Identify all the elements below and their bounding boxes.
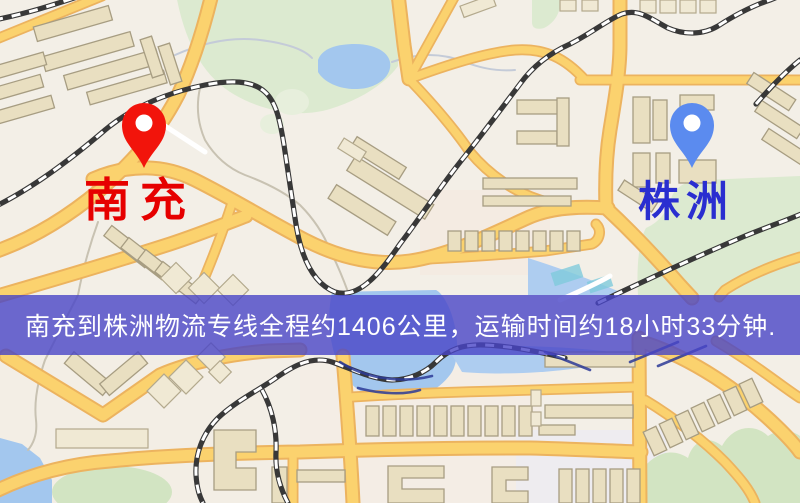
- map-canvas[interactable]: [0, 0, 800, 503]
- pond: [318, 44, 390, 89]
- map-screenshot: 南充 株洲 南充到株洲物流专线全程约1406公里，运输时间约18小时33分钟.: [0, 0, 800, 503]
- route-info-banner: 南充到株洲物流专线全程约1406公里，运输时间约18小时33分钟.: [0, 295, 800, 355]
- zhuzhou-label: 株洲: [638, 181, 734, 223]
- nanchong-label: 南充: [84, 177, 196, 223]
- route-info-text: 南充到株洲物流专线全程约1406公里，运输时间约18小时33分钟.: [25, 307, 776, 343]
